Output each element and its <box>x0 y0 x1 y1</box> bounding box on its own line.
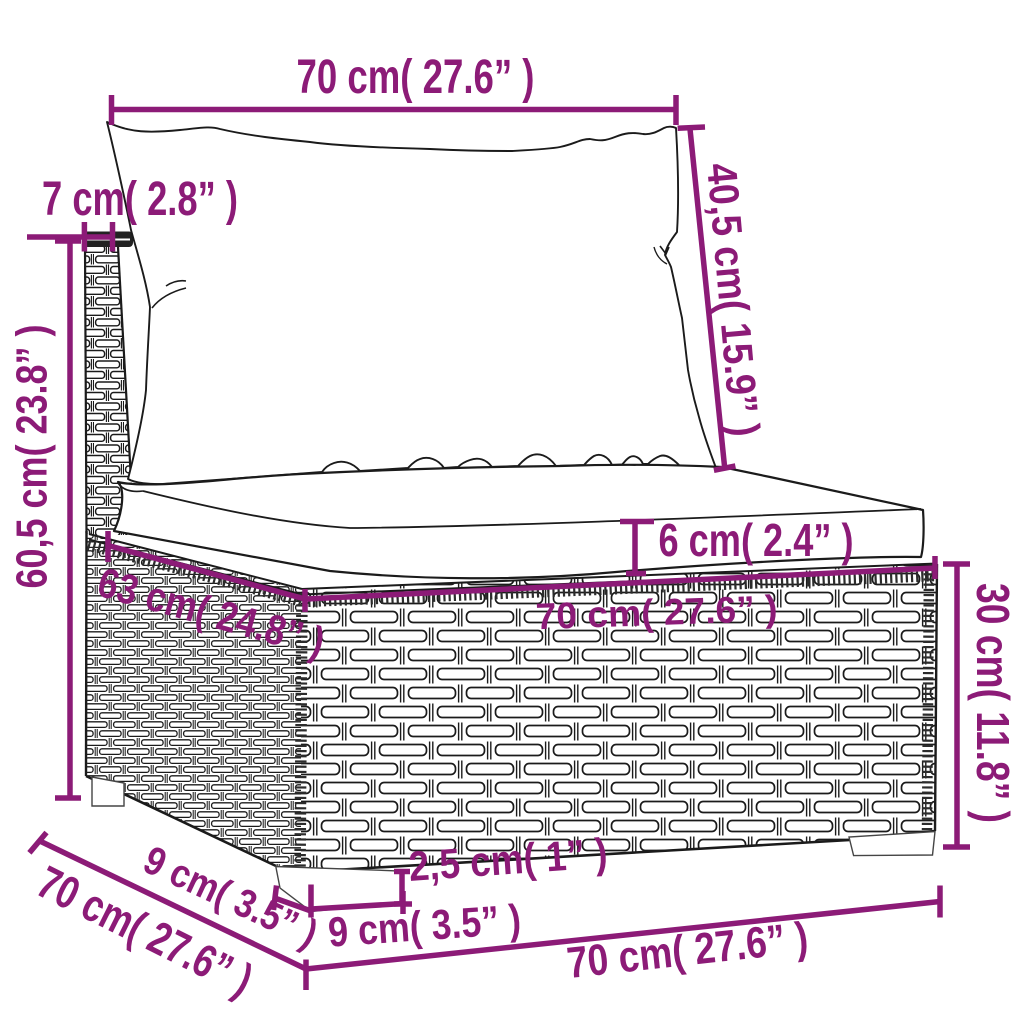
svg-text:70 cm( 27.6” ): 70 cm( 27.6” ) <box>297 51 535 104</box>
svg-text:6 cm( 2.4” ): 6 cm( 2.4” ) <box>659 514 854 566</box>
svg-text:7 cm( 2.8” ): 7 cm( 2.8” ) <box>42 173 238 226</box>
svg-text:60,5 cm( 23.8” ): 60,5 cm( 23.8” ) <box>8 325 57 589</box>
svg-text:30 cm( 11.8” ): 30 cm( 11.8” ) <box>967 583 1019 823</box>
svg-text:70 cm( 27.6” ): 70 cm( 27.6” ) <box>535 588 778 637</box>
